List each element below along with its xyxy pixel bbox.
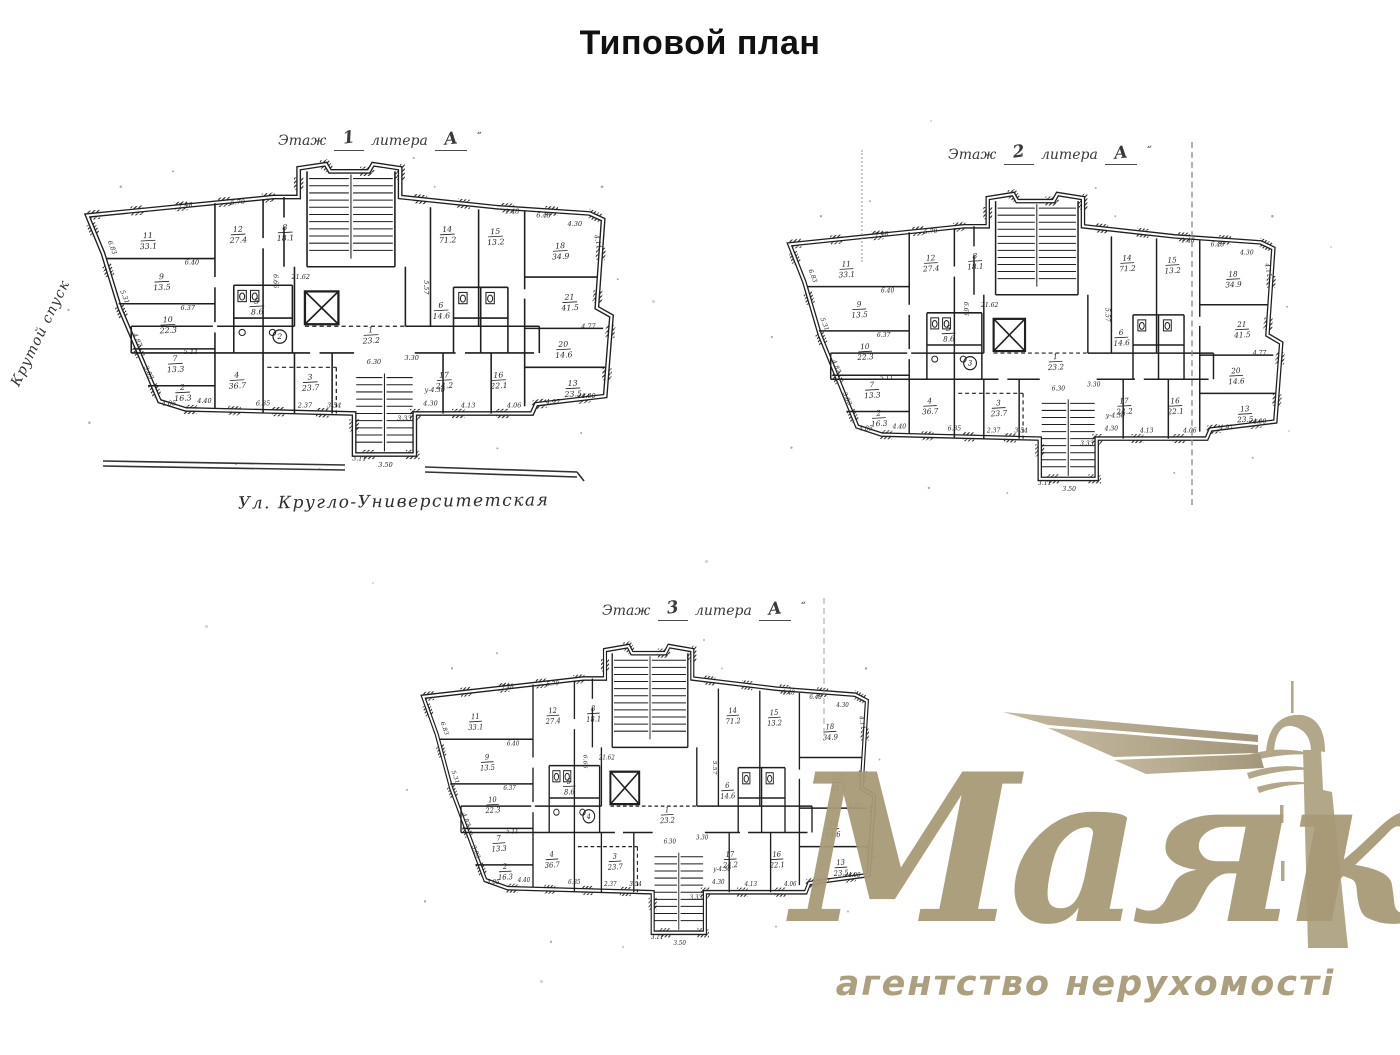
- plan-label-floor-3: Этаж 3 литера А “: [602, 600, 806, 621]
- street-label: Ул. Кругло-Университетская: [238, 490, 550, 513]
- litera-value: А: [443, 128, 459, 149]
- svg-text:6.35: 6.35: [568, 879, 581, 886]
- svg-text:6.37: 6.37: [877, 332, 891, 339]
- svg-text:2: 2: [502, 861, 508, 871]
- svg-text:36.7: 36.7: [228, 381, 246, 391]
- svg-text:8.6: 8.6: [251, 307, 264, 317]
- svg-text:36.7: 36.7: [545, 860, 561, 870]
- svg-text:4: 4: [586, 813, 591, 821]
- svg-text:3: 3: [612, 851, 617, 861]
- svg-text:2: 2: [179, 383, 186, 392]
- svg-text:7.48: 7.48: [178, 201, 193, 210]
- svg-text:4.85: 4.85: [486, 879, 500, 886]
- svg-text:33.1: 33.1: [139, 241, 157, 251]
- scan-fold-line: [1191, 142, 1193, 505]
- svg-text:1.48: 1.48: [505, 208, 519, 216]
- svg-text:6.40: 6.40: [881, 288, 895, 295]
- svg-text:6.40: 6.40: [507, 740, 520, 747]
- scan-fold-line: [823, 598, 825, 734]
- svg-text:9: 9: [485, 752, 490, 762]
- svg-text:13.5: 13.5: [851, 310, 868, 320]
- svg-text:33.1: 33.1: [468, 722, 483, 732]
- scanned-plan-page: Типовой план: [0, 0, 1400, 1055]
- svg-text:5: 5: [946, 324, 951, 333]
- svg-text:7: 7: [496, 833, 501, 843]
- svg-text:у-4.30: у-4.30: [1105, 412, 1125, 419]
- svg-text:3.33: 3.33: [397, 415, 411, 423]
- svg-text:4.30: 4.30: [1239, 249, 1254, 256]
- svg-text:6.35: 6.35: [948, 426, 962, 433]
- svg-text:23.7: 23.7: [607, 862, 624, 872]
- svg-text:5.11: 5.11: [184, 348, 198, 356]
- svg-text:3.33: 3.33: [1080, 441, 1094, 448]
- svg-text:4: 4: [233, 371, 240, 380]
- scan-speck: [705, 560, 708, 563]
- svg-text:18.1: 18.1: [586, 714, 601, 724]
- svg-text:3.30: 3.30: [404, 354, 418, 362]
- svg-text:14: 14: [728, 705, 737, 715]
- svg-text:8: 8: [591, 703, 596, 713]
- svg-text:4.30: 4.30: [835, 702, 849, 709]
- svg-text:6.83: 6.83: [106, 240, 119, 256]
- svg-text:6.66: 6.66: [962, 302, 969, 316]
- svg-text:23.7: 23.7: [301, 383, 320, 393]
- svg-text:21.62: 21.62: [290, 273, 310, 281]
- svg-text:2: 2: [875, 408, 881, 417]
- svg-text:22.3: 22.3: [856, 352, 874, 362]
- svg-text:3: 3: [307, 373, 313, 382]
- svg-text:5: 5: [567, 776, 572, 786]
- svg-text:15: 15: [770, 707, 779, 717]
- svg-text:6: 6: [725, 780, 730, 790]
- scan-speck: [1330, 246, 1332, 248]
- svg-text:10: 10: [860, 342, 870, 352]
- scan-speck: [1288, 430, 1290, 432]
- svg-text:16.3: 16.3: [174, 393, 192, 403]
- svg-text:21: 21: [563, 292, 574, 301]
- svg-text:4.77: 4.77: [1252, 350, 1267, 357]
- svg-text:4.13: 4.13: [744, 881, 758, 888]
- svg-text:6.35: 6.35: [256, 399, 270, 407]
- svg-text:6.48: 6.48: [1211, 241, 1225, 248]
- svg-text:3.50: 3.50: [1062, 486, 1076, 493]
- svg-text:23.5: 23.5: [1236, 414, 1254, 424]
- svg-text:18: 18: [1228, 269, 1238, 279]
- svg-text:41.5: 41.5: [560, 303, 579, 313]
- svg-text:13.2: 13.2: [767, 718, 783, 728]
- svg-text:7: 7: [869, 380, 874, 389]
- svg-text:12: 12: [233, 225, 244, 234]
- svg-text:4.06: 4.06: [506, 401, 521, 409]
- svg-text:3.83: 3.83: [841, 391, 853, 407]
- svg-text:1.48: 1.48: [782, 689, 795, 696]
- svg-text:6.37: 6.37: [503, 785, 516, 792]
- svg-text:3.11: 3.11: [1038, 480, 1052, 487]
- svg-text:4.30: 4.30: [1104, 426, 1119, 433]
- floor-number: 2: [1011, 141, 1026, 162]
- svg-text:2: 2: [276, 332, 282, 341]
- svg-text:21: 21: [1236, 320, 1247, 330]
- svg-text:12: 12: [548, 705, 557, 715]
- svg-text:27.4: 27.4: [228, 235, 247, 245]
- svg-text:17: 17: [439, 370, 450, 379]
- svg-text:17: 17: [725, 849, 734, 859]
- svg-text:16: 16: [1170, 396, 1180, 406]
- svg-text:4.40: 4.40: [517, 877, 531, 884]
- svg-text:1: 1: [1053, 352, 1058, 361]
- svg-text:4.97: 4.97: [545, 398, 561, 406]
- svg-text:4.40: 4.40: [196, 397, 211, 405]
- svg-text:27.4: 27.4: [545, 716, 562, 726]
- svg-text:34.9: 34.9: [1225, 280, 1242, 290]
- svg-text:3.54: 3.54: [629, 881, 642, 888]
- svg-text:18: 18: [555, 241, 566, 250]
- svg-text:8: 8: [972, 251, 977, 260]
- floor-number: 3: [665, 597, 680, 618]
- floor-plan-2: 1133.1913.51022.3713.3216.31227.4818.114…: [762, 186, 1292, 498]
- svg-text:16: 16: [772, 849, 781, 859]
- svg-text:8.6: 8.6: [943, 334, 955, 344]
- svg-text:4.77: 4.77: [580, 322, 596, 330]
- svg-text:4.30: 4.30: [422, 399, 437, 407]
- svg-text:4.13: 4.13: [1139, 428, 1154, 435]
- svg-text:4.30: 4.30: [711, 879, 725, 886]
- svg-text:5.70: 5.70: [924, 228, 938, 236]
- svg-text:2.37: 2.37: [603, 881, 617, 888]
- svg-text:6.30: 6.30: [1052, 385, 1066, 392]
- svg-text:2.37: 2.37: [986, 428, 1001, 435]
- svg-text:13: 13: [1240, 404, 1250, 414]
- scan-speck: [540, 980, 543, 983]
- floor-plan-1: 1133.1913.51022.3713.3216.31227.4818.114…: [58, 156, 623, 474]
- svg-text:6.37: 6.37: [181, 304, 196, 312]
- svg-text:20: 20: [557, 340, 569, 349]
- svg-text:11: 11: [841, 259, 851, 269]
- svg-text:71.2: 71.2: [439, 235, 457, 245]
- svg-text:22.3: 22.3: [158, 326, 177, 336]
- litera-value: А: [767, 598, 783, 619]
- svg-text:14.6: 14.6: [432, 311, 450, 321]
- svg-text:16: 16: [493, 370, 504, 379]
- svg-text:4.00: 4.00: [580, 392, 595, 400]
- svg-text:6.83: 6.83: [807, 268, 819, 284]
- svg-text:6: 6: [438, 301, 444, 310]
- svg-text:13.2: 13.2: [1164, 266, 1181, 276]
- svg-text:21.62: 21.62: [598, 754, 615, 761]
- scan-speck: [205, 625, 208, 628]
- svg-text:4.06: 4.06: [1182, 428, 1197, 435]
- page-title: Типовой план: [0, 24, 1400, 63]
- svg-text:6.48: 6.48: [809, 693, 822, 700]
- plan-label-floor-2: Этаж 2 литера А “: [948, 144, 1152, 165]
- svg-text:21.62: 21.62: [980, 302, 998, 309]
- svg-text:3.83: 3.83: [470, 844, 481, 860]
- svg-text:16.3: 16.3: [871, 418, 888, 428]
- svg-text:14.6: 14.6: [720, 791, 736, 801]
- svg-text:9: 9: [159, 272, 165, 281]
- svg-text:23.2: 23.2: [659, 815, 676, 825]
- svg-text:4.30: 4.30: [567, 220, 582, 228]
- svg-text:12: 12: [926, 253, 936, 263]
- svg-text:3.83: 3.83: [142, 365, 155, 381]
- svg-text:14: 14: [1122, 253, 1132, 263]
- svg-text:3.11: 3.11: [651, 934, 663, 941]
- svg-text:13.5: 13.5: [153, 282, 171, 292]
- plan-label-floor-1: Этаж 1 литера А “: [278, 130, 482, 151]
- svg-text:13.3: 13.3: [167, 365, 185, 375]
- svg-text:11: 11: [471, 711, 480, 721]
- svg-text:14.6: 14.6: [1113, 338, 1130, 348]
- svg-text:15: 15: [1167, 255, 1177, 265]
- svg-text:5: 5: [254, 297, 260, 306]
- svg-text:13.2: 13.2: [487, 237, 505, 247]
- street-edge-line: [95, 453, 605, 485]
- svg-text:22.1: 22.1: [769, 860, 785, 870]
- brand-wordmark: Маяк: [792, 748, 1400, 953]
- svg-text:14.6: 14.6: [1228, 376, 1245, 386]
- svg-text:22.3: 22.3: [484, 805, 501, 815]
- scan-speck: [372, 582, 374, 584]
- svg-text:3.54: 3.54: [327, 401, 341, 409]
- svg-text:41.5: 41.5: [1233, 330, 1251, 340]
- svg-text:15: 15: [490, 227, 501, 236]
- svg-text:8.6: 8.6: [564, 787, 576, 797]
- svg-text:7: 7: [172, 354, 178, 363]
- svg-text:22.1: 22.1: [1166, 406, 1184, 416]
- svg-text:23.7: 23.7: [990, 408, 1008, 418]
- svg-text:5.57: 5.57: [711, 761, 718, 775]
- svg-text:10: 10: [488, 794, 497, 804]
- svg-text:9: 9: [856, 300, 861, 309]
- scan-speck: [930, 120, 932, 122]
- svg-text:5.57: 5.57: [1104, 308, 1111, 322]
- svg-text:4.85: 4.85: [161, 399, 176, 407]
- brand-tagline: агентство нерухомості: [828, 964, 1343, 1004]
- svg-text:у-4.30: у-4.30: [712, 866, 731, 873]
- svg-text:5.11: 5.11: [506, 828, 518, 835]
- svg-text:4.97: 4.97: [1218, 424, 1233, 431]
- svg-text:27.4: 27.4: [922, 264, 940, 274]
- svg-text:10: 10: [163, 315, 174, 324]
- svg-text:13: 13: [567, 379, 578, 388]
- svg-text:1: 1: [368, 325, 373, 334]
- svg-text:5.70: 5.70: [546, 680, 559, 688]
- svg-text:6.66: 6.66: [272, 274, 280, 288]
- svg-text:7.48: 7.48: [501, 683, 514, 692]
- svg-text:6.66: 6.66: [582, 755, 589, 769]
- svg-text:3: 3: [996, 398, 1001, 407]
- svg-text:4.85: 4.85: [858, 426, 873, 433]
- svg-text:6.83: 6.83: [439, 721, 450, 737]
- svg-text:6.40: 6.40: [185, 259, 199, 267]
- svg-text:3.50: 3.50: [673, 940, 686, 947]
- svg-text:71.2: 71.2: [1119, 264, 1136, 274]
- svg-text:23.5: 23.5: [563, 389, 582, 399]
- svg-text:36.7: 36.7: [922, 406, 939, 416]
- svg-text:5.11: 5.11: [880, 375, 894, 382]
- svg-text:6.30: 6.30: [367, 358, 381, 366]
- svg-text:6: 6: [1119, 328, 1124, 337]
- svg-text:3.33: 3.33: [690, 894, 703, 901]
- svg-text:4: 4: [548, 849, 554, 859]
- svg-text:3.30: 3.30: [696, 834, 709, 841]
- svg-text:17: 17: [1119, 396, 1129, 406]
- svg-text:71.2: 71.2: [725, 716, 741, 726]
- svg-text:3.54: 3.54: [1014, 428, 1028, 435]
- svg-text:18.1: 18.1: [967, 262, 984, 272]
- svg-text:4.00: 4.00: [1252, 418, 1267, 425]
- svg-text:14.6: 14.6: [555, 350, 573, 360]
- svg-text:7.48: 7.48: [874, 231, 888, 240]
- svg-text:33.1: 33.1: [838, 270, 855, 280]
- svg-text:2.37: 2.37: [297, 401, 313, 409]
- scan-speck: [652, 300, 655, 303]
- svg-text:18.1: 18.1: [277, 233, 295, 243]
- svg-text:4.13: 4.13: [460, 401, 475, 409]
- svg-text:4.40: 4.40: [892, 423, 907, 430]
- svg-text:6.30: 6.30: [664, 838, 677, 845]
- svg-text:1: 1: [665, 805, 670, 815]
- svg-text:5.57: 5.57: [422, 280, 430, 295]
- svg-text:13.3: 13.3: [491, 843, 507, 853]
- svg-text:4.11: 4.11: [592, 233, 603, 249]
- svg-text:34.9: 34.9: [552, 252, 570, 262]
- svg-text:22.1: 22.1: [489, 381, 508, 391]
- svg-text:5.70: 5.70: [230, 198, 245, 207]
- svg-text:23.2: 23.2: [361, 336, 380, 346]
- svg-text:23.2: 23.2: [1046, 362, 1064, 372]
- svg-text:у-4.30: у-4.30: [423, 386, 444, 394]
- svg-text:14: 14: [442, 225, 453, 234]
- scan-fold-line: [861, 150, 863, 262]
- litera-value: А: [1113, 142, 1129, 163]
- svg-text:20: 20: [1230, 366, 1241, 376]
- svg-text:3.30: 3.30: [1087, 381, 1101, 388]
- svg-text:13.3: 13.3: [864, 390, 881, 400]
- svg-text:16.3: 16.3: [498, 872, 514, 882]
- svg-text:11: 11: [143, 231, 153, 240]
- floor-number: 1: [341, 127, 356, 148]
- svg-text:6.48: 6.48: [536, 212, 550, 220]
- svg-text:4: 4: [926, 396, 932, 405]
- svg-text:13.5: 13.5: [480, 762, 496, 772]
- svg-text:8: 8: [282, 223, 288, 232]
- svg-text:3: 3: [968, 360, 973, 368]
